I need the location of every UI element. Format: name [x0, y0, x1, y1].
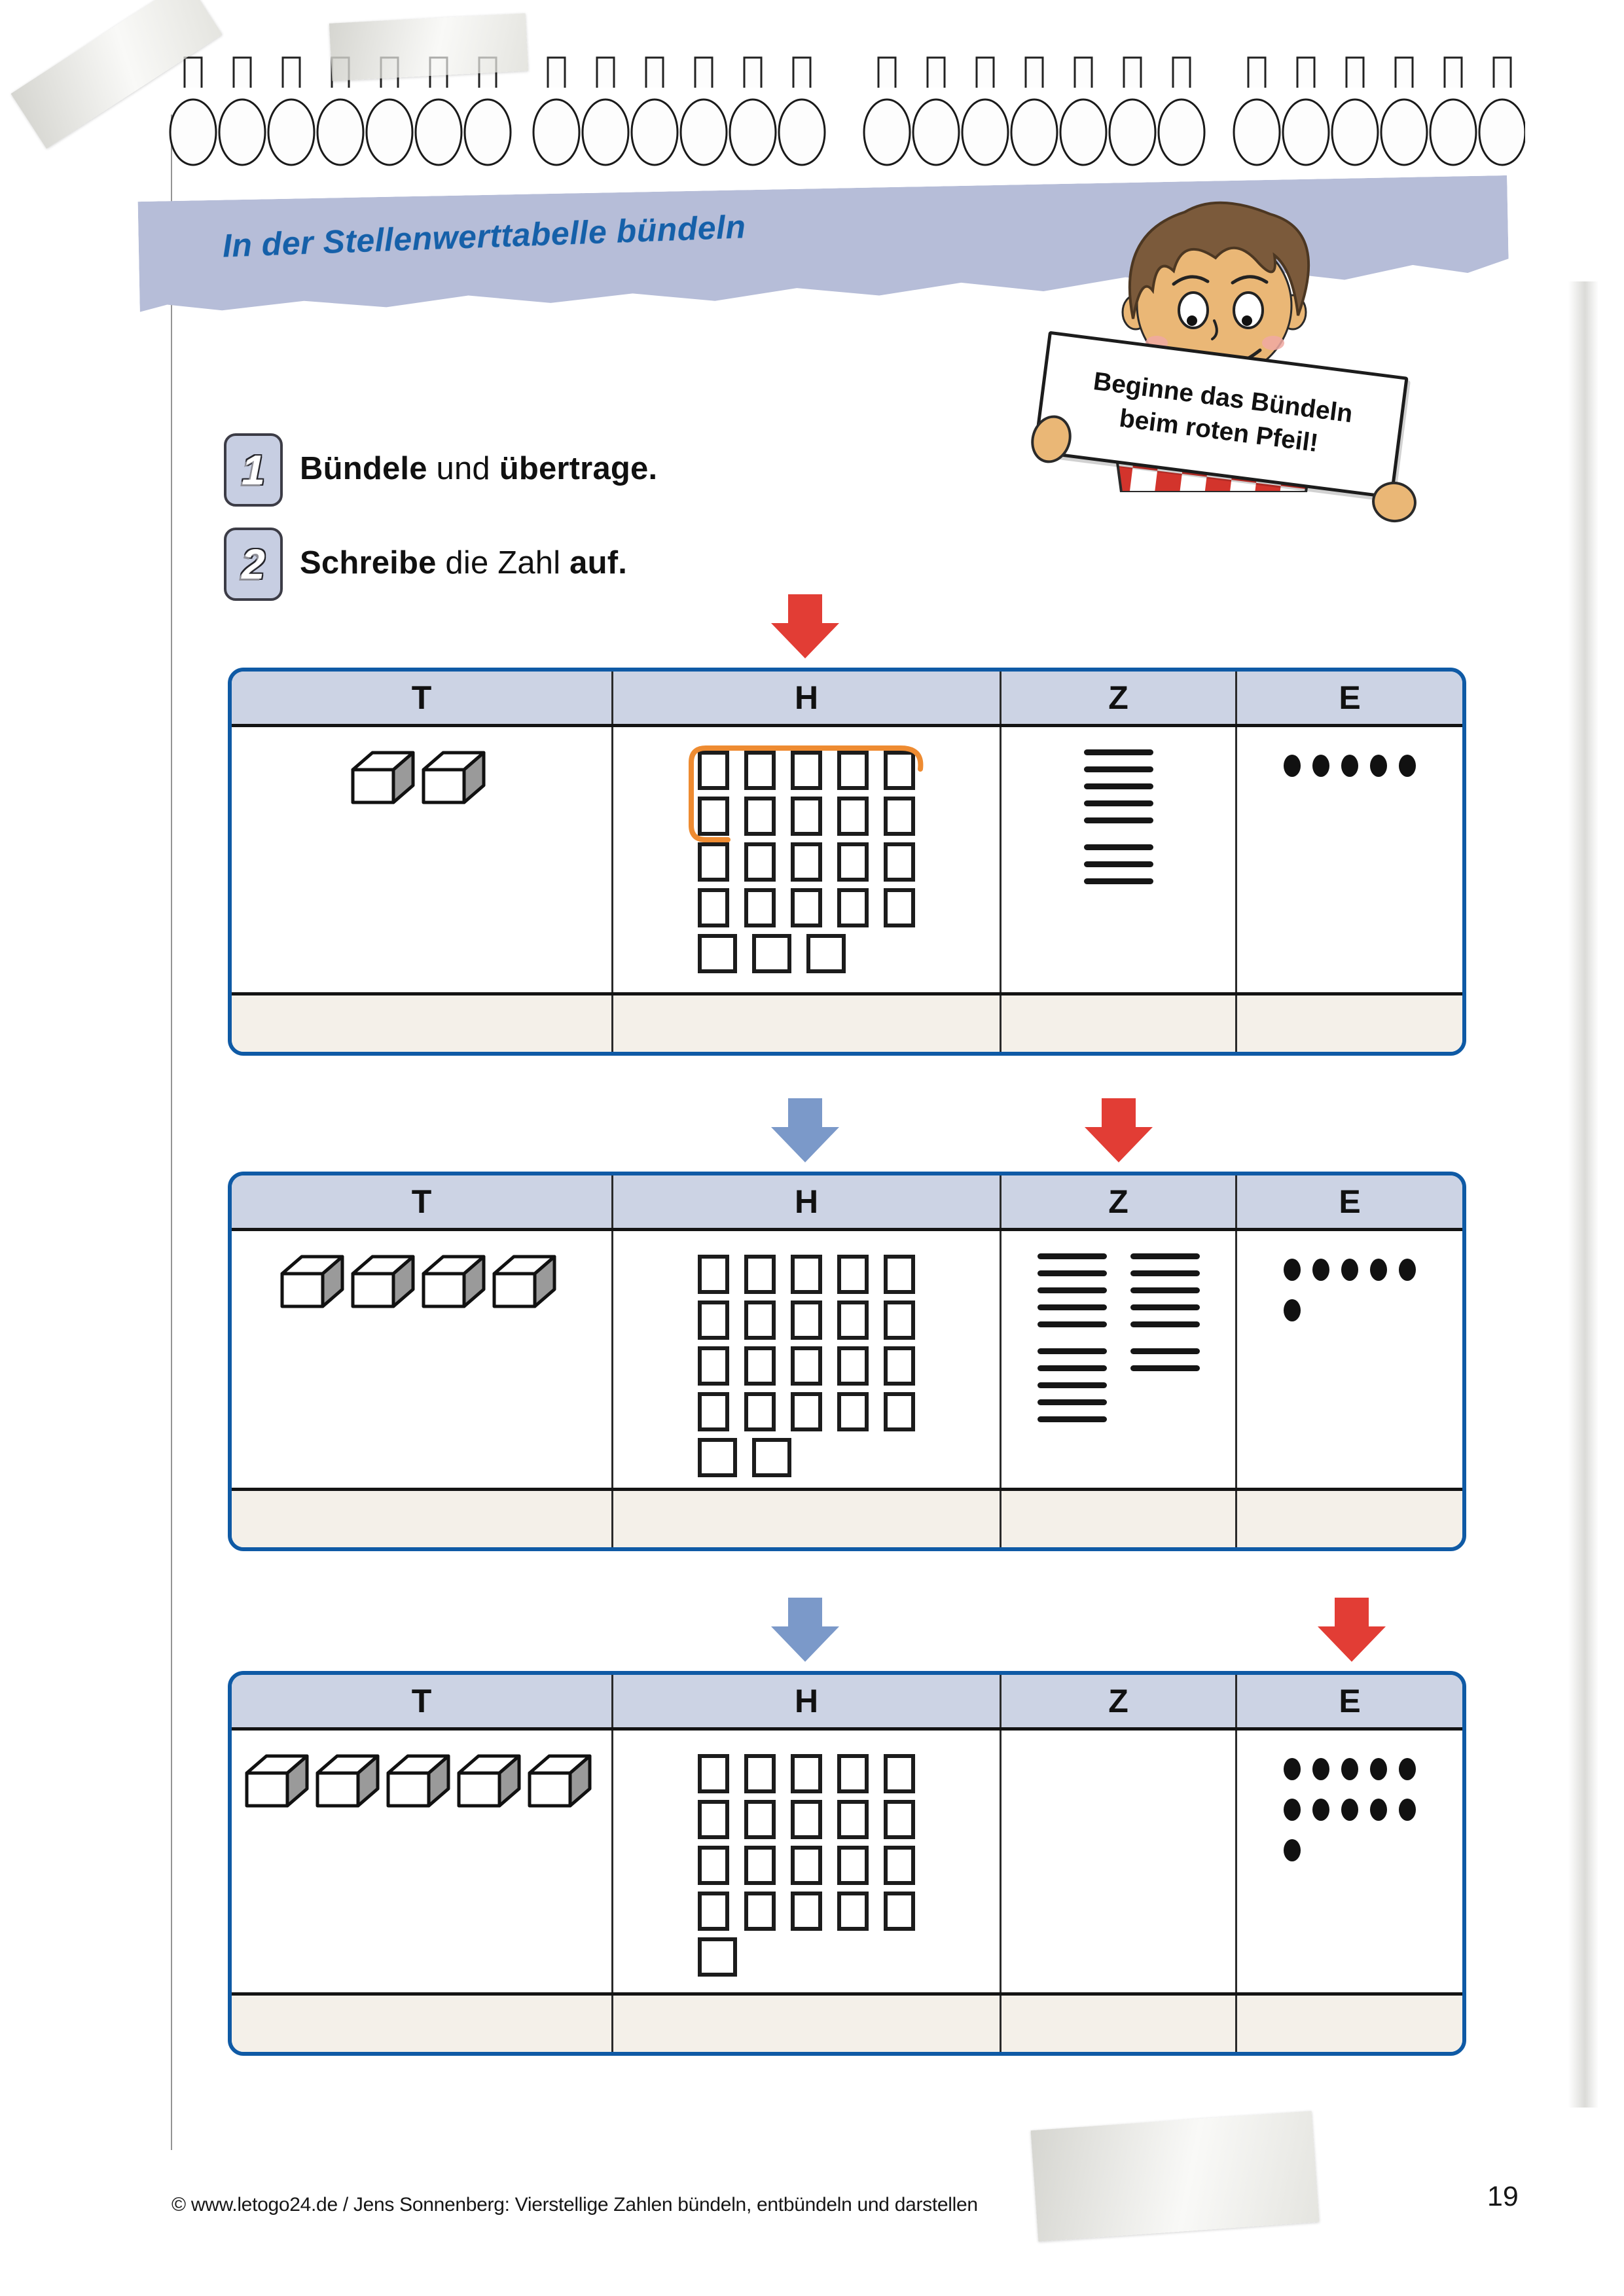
spiral-loop [1430, 99, 1476, 165]
hundreds-square [884, 842, 915, 882]
ones-dot [1284, 1259, 1301, 1281]
instruction-word: die Zahl [437, 545, 570, 581]
hundreds-row [698, 1255, 915, 1294]
thousands-cell [232, 727, 613, 992]
instruction-text: Schreibe die Zahl auf. [300, 545, 627, 581]
hundreds-square [837, 751, 869, 790]
instruction-keyword: übertrage. [499, 451, 658, 486]
spiral-loop [533, 99, 579, 165]
hundreds-square [791, 1255, 822, 1294]
hundreds-square [744, 1255, 776, 1294]
hundreds-square [698, 1937, 737, 1977]
hundreds-square [837, 1754, 869, 1793]
header-cell-E: E [1237, 672, 1462, 724]
header-cell-H: H [613, 1675, 1001, 1727]
hundreds-square [837, 842, 869, 882]
tens-line [1038, 1304, 1107, 1310]
table-header-row: THZE [232, 1175, 1462, 1231]
answer-row [232, 1488, 1462, 1547]
spiral-loop [1381, 99, 1427, 165]
header-cell-E: E [1237, 1175, 1462, 1228]
spiral-loop [1060, 99, 1106, 165]
thousands-cube [351, 749, 416, 806]
hundreds-square [884, 1754, 915, 1793]
thousands-cube [245, 1753, 310, 1809]
thousands-cell [232, 1731, 613, 1992]
hundreds-square [791, 1300, 822, 1340]
spiral-loop [465, 99, 511, 165]
ones-dot [1341, 1259, 1358, 1281]
tens-line [1038, 1382, 1107, 1388]
hundreds-square [698, 1754, 729, 1793]
ones-dot [1399, 1758, 1416, 1780]
hundreds-square [698, 934, 737, 973]
hundreds-square [837, 1800, 869, 1839]
hundreds-square [752, 934, 791, 973]
page-left-edge [171, 115, 172, 2150]
thousands-cube [386, 1753, 452, 1809]
spiral-loop [681, 99, 727, 165]
table-body-row [232, 1731, 1462, 1992]
instruction-number: 2 [242, 540, 265, 588]
tens-line [1038, 1365, 1107, 1371]
worksheet-page: In der Stellenwerttabelle bündeln [0, 0, 1624, 2296]
instruction-number: 1 [242, 446, 265, 494]
spiral-loop [962, 99, 1008, 165]
ones-dots [1284, 755, 1416, 777]
tens-cell [1001, 1731, 1237, 1992]
hundreds-square [698, 1300, 729, 1340]
ones-dot [1370, 1259, 1387, 1281]
answer-cell-E[interactable] [1237, 996, 1462, 1052]
header-cell-H: H [613, 672, 1001, 724]
hundreds-square [744, 797, 776, 836]
hundreds-row [698, 1937, 915, 1977]
header-cell-Z: Z [1001, 1175, 1237, 1228]
tens-column [1130, 1253, 1200, 1433]
red-arrow-h-column [771, 594, 839, 658]
hundreds-cell [613, 1231, 1001, 1488]
ones-dot [1341, 1799, 1358, 1821]
hundreds-square [744, 751, 776, 790]
ones-dot [1370, 1758, 1387, 1780]
answer-row [232, 992, 1462, 1052]
spiral-loop [268, 99, 314, 165]
thousands-cube [492, 1253, 558, 1310]
tape-top-center [329, 13, 528, 81]
cubes-row [232, 749, 611, 806]
ones-dot [1284, 1299, 1301, 1321]
tens-line [1038, 1416, 1107, 1422]
hundreds-square [884, 1392, 915, 1431]
hundreds-row [698, 1800, 915, 1839]
page-torn-right-edge [1568, 281, 1598, 2108]
tens-line [1084, 817, 1153, 823]
place-value-table-2: THZE [228, 1172, 1466, 1551]
instruction-text: Bündele und übertrage. [300, 450, 657, 487]
hundreds-square [744, 1346, 776, 1386]
hundreds-square [884, 797, 915, 836]
hundreds-grid [698, 1754, 915, 1977]
thousands-cube [316, 1753, 381, 1809]
hundreds-square [884, 1846, 915, 1885]
hundreds-square [837, 797, 869, 836]
hundreds-square [837, 1346, 869, 1386]
answer-cell-T[interactable] [232, 996, 613, 1052]
ones-row [1284, 1839, 1416, 1861]
spiral-loop [583, 99, 628, 165]
ones-dot [1370, 755, 1387, 777]
hundreds-square [837, 1300, 869, 1340]
instruction-keyword: Schreibe [300, 545, 437, 581]
hundreds-square [698, 1255, 729, 1294]
thousands-cube [528, 1753, 593, 1809]
ones-cell [1237, 1231, 1462, 1488]
hundreds-square [837, 1892, 869, 1931]
hundreds-square [698, 751, 729, 790]
header-cell-Z: Z [1001, 1675, 1237, 1727]
tens-line [1130, 1365, 1200, 1371]
hundreds-row [698, 842, 915, 882]
hundreds-square [791, 888, 822, 927]
spiral-loop [416, 99, 461, 165]
hundreds-square [791, 842, 822, 882]
ones-dot [1399, 1259, 1416, 1281]
header-cell-E: E [1237, 1675, 1462, 1727]
answer-cell-H[interactable] [613, 996, 1001, 1052]
header-cell-T: T [232, 672, 613, 724]
ones-dot [1399, 1799, 1416, 1821]
instruction-word: und [427, 451, 499, 486]
ones-dot [1284, 1758, 1301, 1780]
hundreds-square [837, 1255, 869, 1294]
hundreds-square [698, 797, 729, 836]
ones-dot [1284, 1839, 1301, 1861]
hundreds-square [791, 1392, 822, 1431]
hundreds-row [698, 934, 915, 973]
footer-credit: © www.letogo24.de / Jens Sonnenberg: Vie… [171, 2194, 978, 2216]
answer-cell-T[interactable] [232, 1996, 613, 2052]
ones-dot [1312, 1758, 1329, 1780]
instruction-keyword: auf. [569, 545, 627, 581]
blue-arrow-h-column [771, 1098, 839, 1162]
hundreds-grid [698, 1255, 915, 1477]
ones-dot [1341, 755, 1358, 777]
tens-line [1130, 1270, 1200, 1276]
tens-line [1084, 766, 1153, 772]
hundreds-square [698, 888, 729, 927]
spiral-loop [170, 99, 216, 165]
answer-cell-H[interactable] [613, 1491, 1001, 1547]
hundreds-square [884, 751, 915, 790]
header-cell-T: T [232, 1675, 613, 1727]
header-cell-Z: Z [1001, 672, 1237, 724]
hundreds-square [752, 1438, 791, 1477]
hundreds-square [791, 1800, 822, 1839]
instruction-keyword: Bündele [300, 451, 427, 486]
hundreds-square [744, 1800, 776, 1839]
hundreds-square [744, 1846, 776, 1885]
table-body-row [232, 1231, 1462, 1488]
spiral-loop [864, 99, 910, 165]
place-value-table-3: THZE [228, 1671, 1466, 2056]
hundreds-row [698, 1754, 915, 1793]
ones-dot [1312, 1799, 1329, 1821]
red-arrow-z-column [1085, 1098, 1153, 1162]
ones-dot [1341, 1758, 1358, 1780]
hundreds-row [698, 1892, 915, 1931]
hundreds-square [791, 751, 822, 790]
ones-dot [1370, 1799, 1387, 1821]
spiral-loop [913, 99, 959, 165]
tens-lines [1001, 1253, 1235, 1433]
tens-line [1084, 749, 1153, 755]
tens-line [1038, 1321, 1107, 1327]
hundreds-square [884, 1346, 915, 1386]
hundreds-grid [698, 751, 915, 973]
tens-line [1084, 861, 1153, 867]
thousands-cube [422, 1253, 487, 1310]
ones-cell [1237, 1731, 1462, 1992]
hundreds-row [698, 1846, 915, 1885]
instruction-number-badge: 1 [224, 433, 283, 507]
tens-line [1130, 1253, 1200, 1259]
ones-dots [1284, 1259, 1416, 1321]
hundreds-square [744, 1754, 776, 1793]
hundreds-square [884, 1800, 915, 1839]
hundreds-square [791, 797, 822, 836]
cubes-row [232, 1253, 611, 1310]
table-header-row: THZE [232, 1675, 1462, 1731]
hundreds-square [791, 1846, 822, 1885]
spiral-loop [317, 99, 363, 165]
tape-bottom [1031, 2111, 1320, 2242]
hundreds-square [884, 888, 915, 927]
hundreds-cell [613, 727, 1001, 992]
hundreds-square [791, 1754, 822, 1793]
thousands-cube [351, 1253, 416, 1310]
ones-row [1284, 1799, 1416, 1821]
tens-line [1130, 1321, 1200, 1327]
hundreds-square [837, 1392, 869, 1431]
table-body-row [232, 727, 1462, 992]
hundreds-square [884, 1892, 915, 1931]
page-number: 19 [1487, 2181, 1519, 2213]
header-cell-H: H [613, 1175, 1001, 1228]
spiral-loop [779, 99, 825, 165]
tens-line [1038, 1270, 1107, 1276]
ones-dots [1284, 1758, 1416, 1861]
thousands-cell [232, 1231, 613, 1488]
hundreds-square [698, 1892, 729, 1931]
place-value-table-1: THZE [228, 668, 1466, 1056]
instruction-number-badge: 2 [224, 528, 283, 601]
ones-dot [1312, 1259, 1329, 1281]
hundreds-row [698, 751, 915, 790]
tens-line [1038, 1348, 1107, 1354]
thousands-cube [280, 1253, 346, 1310]
tens-line [1038, 1253, 1107, 1259]
answer-cell-H[interactable] [613, 1996, 1001, 2052]
tens-line [1084, 844, 1153, 850]
ones-row [1284, 755, 1416, 777]
answer-row [232, 1992, 1462, 2052]
hundreds-square [744, 1392, 776, 1431]
spiral-loop [632, 99, 677, 165]
tens-line [1038, 1287, 1107, 1293]
ones-dot [1284, 755, 1301, 777]
red-arrow-e-column [1318, 1598, 1386, 1662]
ones-row [1284, 1259, 1416, 1281]
hundreds-square [884, 1255, 915, 1294]
tens-cell [1001, 1231, 1237, 1488]
hundreds-square [791, 1892, 822, 1931]
answer-cell-E[interactable] [1237, 1491, 1462, 1547]
hundreds-row [698, 1438, 915, 1477]
tens-line [1130, 1287, 1200, 1293]
tens-line [1084, 800, 1153, 806]
answer-cell-Z[interactable] [1001, 996, 1237, 1052]
hundreds-row [698, 888, 915, 927]
hundreds-square [698, 1800, 729, 1839]
tens-line [1130, 1304, 1200, 1310]
cubes-row [232, 1753, 611, 1809]
header-cell-T: T [232, 1175, 613, 1228]
hundreds-square [744, 888, 776, 927]
tens-column [1038, 1253, 1107, 1433]
ones-dot [1284, 1799, 1301, 1821]
spiral-loop [1332, 99, 1378, 165]
answer-cell-T[interactable] [232, 1491, 613, 1547]
hundreds-row [698, 797, 915, 836]
hundreds-row [698, 1346, 915, 1386]
tens-line [1084, 878, 1153, 884]
answer-cell-Z[interactable] [1001, 1996, 1237, 2052]
spiral-loop [730, 99, 776, 165]
table-header-row: THZE [232, 672, 1462, 727]
hundreds-square [698, 1438, 737, 1477]
blue-arrow-h-column [771, 1598, 839, 1662]
hundreds-square [837, 1846, 869, 1885]
hundreds-square [744, 842, 776, 882]
tens-line [1038, 1399, 1107, 1405]
answer-cell-Z[interactable] [1001, 1491, 1237, 1547]
tens-column [1084, 749, 1153, 895]
page-title: In der Stellenwerttabelle bündeln [222, 207, 747, 264]
hundreds-square [698, 842, 729, 882]
spiral-loop [367, 99, 412, 165]
thousands-cube [422, 749, 487, 806]
hundreds-square [837, 888, 869, 927]
spiral-loop [1234, 99, 1280, 165]
ones-cell [1237, 727, 1462, 992]
tens-cell [1001, 727, 1237, 992]
spiral-loop [1110, 99, 1155, 165]
spiral-loop [1283, 99, 1329, 165]
thousands-cube [457, 1753, 522, 1809]
answer-cell-E[interactable] [1237, 1996, 1462, 2052]
spiral-loop [1011, 99, 1057, 165]
tens-line [1084, 783, 1153, 789]
tens-lines [1001, 749, 1235, 895]
hundreds-square [744, 1300, 776, 1340]
tens-line [1130, 1348, 1200, 1354]
hundreds-square [806, 934, 846, 973]
ones-dot [1312, 755, 1329, 777]
hundreds-row [698, 1300, 915, 1340]
spiral-loop [219, 99, 265, 165]
hundreds-square [791, 1346, 822, 1386]
spiral-loop [1479, 99, 1525, 165]
ones-dot [1399, 755, 1416, 777]
hundreds-cell [613, 1731, 1001, 1992]
ones-row [1284, 1758, 1416, 1780]
spiral-loop [1159, 99, 1204, 165]
hundreds-square [744, 1892, 776, 1931]
hundreds-square [698, 1392, 729, 1431]
hundreds-square [884, 1300, 915, 1340]
hundreds-row [698, 1392, 915, 1431]
hundreds-square [698, 1346, 729, 1386]
ones-row [1284, 1299, 1416, 1321]
hundreds-square [698, 1846, 729, 1885]
